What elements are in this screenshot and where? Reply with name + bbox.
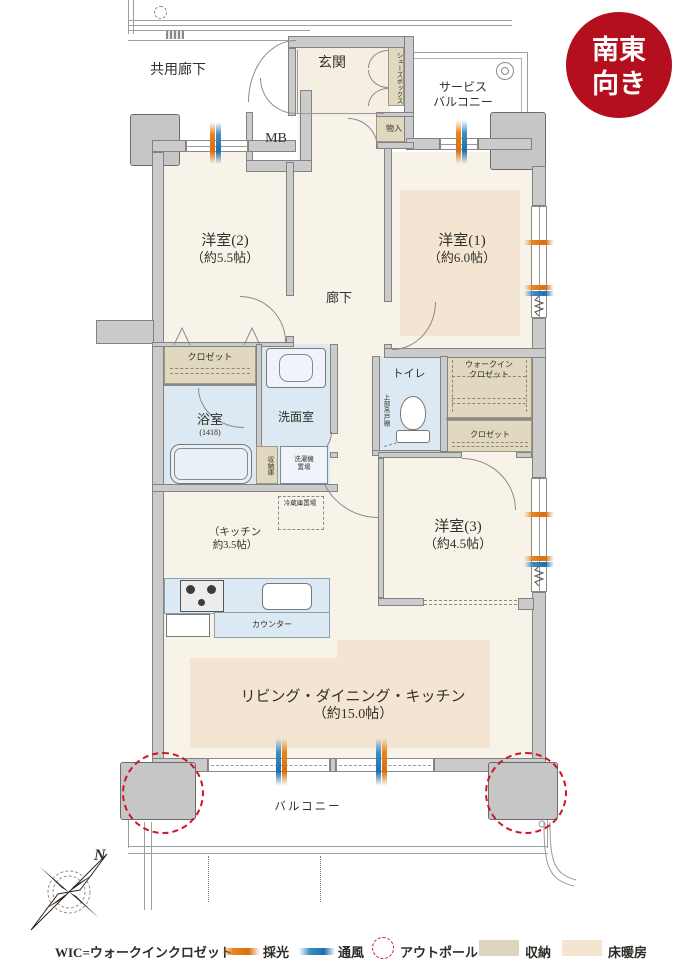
ventilation-marker-bedroom1-top [462, 120, 467, 164]
door-arc-entrance-inner [260, 78, 296, 114]
bathtub [170, 444, 252, 484]
daylight-legend-bar [222, 948, 260, 955]
daylight-marker-bedroom1-right2 [524, 285, 554, 290]
entrance-hall-step [296, 113, 384, 114]
legend-outpole-label: アウトポール [400, 942, 478, 961]
common-corridor-label: 共用廊下 [148, 62, 208, 80]
ventilation-marker-ldk-left [276, 738, 281, 786]
wall-washroom-right-a [330, 344, 338, 434]
wall-storage-in-bottom [376, 142, 414, 149]
ventilation-legend-bar [299, 948, 335, 955]
legend-ventilation-label: 通風 [338, 942, 364, 961]
washbasin-bowl [279, 354, 313, 382]
bedroom2-name-label: 洋室(2) [155, 232, 295, 251]
legend-floor-heating-label: 床暖房 [608, 942, 647, 961]
balcony-label: バルコニー [270, 800, 346, 814]
ventilation-marker-bedroom2-top [216, 122, 221, 164]
burner-icon-2 [207, 585, 216, 594]
direction-badge-line2: 向き [566, 68, 672, 102]
corridor-edge-line [128, 0, 134, 34]
wall-right-c [532, 592, 546, 770]
drain-inner [501, 67, 509, 75]
sliding-door-bedroom3 [424, 600, 532, 601]
folding-door-icon-2 [242, 326, 262, 346]
fridge-place-label: 冷蔵庫置場 [279, 500, 321, 508]
wic-label-2: クロゼット [448, 370, 530, 380]
wall-hatch [166, 31, 184, 39]
corridor-boundary-line1 [128, 20, 512, 26]
wall-bedroom3-left [378, 458, 384, 598]
counter-label: カウンター [230, 620, 314, 630]
wic-label-1: ウォークイン [448, 360, 530, 370]
balcony-drain-pipes [538, 820, 580, 910]
direction-badge-line1: 南東 [566, 34, 672, 68]
burner-icon-3 [198, 599, 205, 606]
storage-cabinet-label: 収納庫 [261, 450, 273, 482]
bathroom-label: 浴室 [166, 412, 254, 428]
drain-icon [496, 62, 514, 80]
bathtub-inner [174, 448, 248, 480]
meter-box-label: MB [258, 130, 294, 148]
balcony-divider-dotted-1 [208, 856, 209, 902]
kitchen-label-2: 約3.5帖） [180, 539, 290, 552]
wall-mb-bottom [246, 160, 312, 172]
wall-wic-left [440, 356, 448, 452]
daylight-marker-bedroom2-top [210, 122, 215, 164]
ventilation-marker-ldk-right [376, 738, 381, 786]
balcony-left-pipe [144, 822, 152, 910]
outpole-circle-left [122, 752, 204, 834]
bedroom1-size-label: （約6.0帖） [392, 250, 532, 266]
daylight-marker-bedroom3-right1 [524, 512, 554, 517]
service-balcony-label-2: バルコニー [428, 95, 498, 110]
service-balcony-label-1: サービス [428, 80, 498, 95]
wall-entrance-top [288, 36, 414, 48]
legend-wic-note: WIC=ウォークインクロゼット [55, 942, 233, 961]
bedroom3-size-label: （約4.5帖） [388, 536, 528, 552]
corridor-post-circle [154, 6, 167, 19]
wall-right-a [532, 166, 546, 206]
bedroom3-name-label: 洋室(3) [388, 518, 528, 537]
toilet-tank [396, 430, 430, 443]
wall-bedroom2-top-a [152, 140, 186, 152]
floor-heating-legend-swatch [562, 940, 602, 956]
balcony-divider-dotted-2 [320, 856, 321, 902]
legend-daylight-label: 採光 [263, 942, 289, 961]
daylight-marker-bedroom3-right2 [524, 556, 554, 561]
window-spring-icon-1 [533, 296, 545, 316]
wall-bedroom1-bottom [384, 348, 546, 358]
kitchen-label-1: （キッチン [180, 526, 290, 539]
compass-icon [14, 840, 129, 940]
bedroom1-name-label: 洋室(1) [392, 232, 532, 251]
washer-place-label-1: 洗濯機 [281, 456, 327, 464]
wall-mb-corridor [300, 90, 312, 164]
daylight-marker-bedroom1-top [456, 120, 461, 164]
closet-bedroom3-label: クロゼット [450, 430, 530, 440]
closet3-dash-2 [452, 446, 528, 447]
stove [180, 580, 224, 612]
closet2-dash-1 [170, 368, 250, 369]
closet-bedroom2-label: クロゼット [168, 352, 252, 363]
wall-wet-bottom [152, 484, 338, 492]
window-spring-icon-2 [533, 566, 545, 586]
toilet-label: トイレ [386, 368, 432, 382]
entrance-label: 玄関 [312, 55, 352, 73]
kitchen-cabinet [166, 614, 210, 637]
toilet-bowl [400, 396, 426, 430]
bathroom-size-label: (1418) [166, 428, 254, 438]
storage-legend-swatch [479, 940, 519, 956]
entrance-step-line [297, 50, 298, 114]
ldk-size-label: （約15.0帖） [228, 706, 478, 724]
corridor-boundary-line2 [128, 30, 310, 41]
burner-icon-1 [186, 585, 195, 594]
window-ldk-left [208, 758, 330, 772]
direction-badge: 南東 向き [566, 12, 672, 118]
bedroom2-size-label: （約5.5帖） [155, 250, 295, 266]
closet2-dash-2 [170, 373, 250, 374]
compass-north-label: N [94, 846, 106, 866]
folding-door-icon-1 [172, 326, 192, 346]
outpole-legend-circle [372, 937, 394, 959]
wall-wic-closet-line [446, 418, 532, 420]
wall-servicebalcony-b [478, 138, 532, 150]
wall-bedroom3-bottom-stub [378, 598, 424, 606]
storage-in-label: 物入 [377, 124, 411, 134]
wall-corridor-bedroom1-a [384, 148, 392, 302]
closet3-dash-1 [452, 442, 528, 443]
wic-dash-3 [452, 403, 526, 404]
daylight-marker-ldk-right [382, 738, 387, 786]
wall-corridor-stub [96, 320, 154, 344]
wall-ldk-right-stub [518, 598, 534, 610]
washroom-label: 洗面室 [262, 410, 330, 425]
wall-closet-bath-line [164, 384, 256, 386]
ldk-name-label: リビング・ダイニング・キッチン [228, 688, 478, 707]
sliding-door-bedroom3-b [424, 604, 532, 605]
shoe-box-label: シューズボックス [390, 50, 402, 106]
kitchen-sink [262, 583, 312, 610]
washbasin [266, 348, 326, 388]
washer-place-label-2: 置場 [281, 464, 327, 472]
window-dash-line [211, 765, 327, 766]
corridor-label: 廊下 [306, 290, 372, 306]
outpole-circle-right [485, 752, 567, 834]
wall-bedroom3-top-b [516, 452, 532, 458]
wall-right-b [532, 318, 546, 478]
wic-dash-2 [452, 398, 526, 399]
balcony-outer-line [128, 846, 548, 854]
legend-storage-label: 収納 [525, 942, 551, 961]
floor-plan: 共用廊下 玄関 シューズボックス サービス バルコニー MB 物入 洋室(2) … [0, 0, 680, 970]
daylight-marker-ldk-left [282, 738, 287, 786]
upper-shelf-label: 上部吊戸棚 [379, 384, 389, 436]
wall-bedroom3-top-a [378, 452, 462, 458]
wall-bedroom2-right-a [286, 162, 294, 296]
